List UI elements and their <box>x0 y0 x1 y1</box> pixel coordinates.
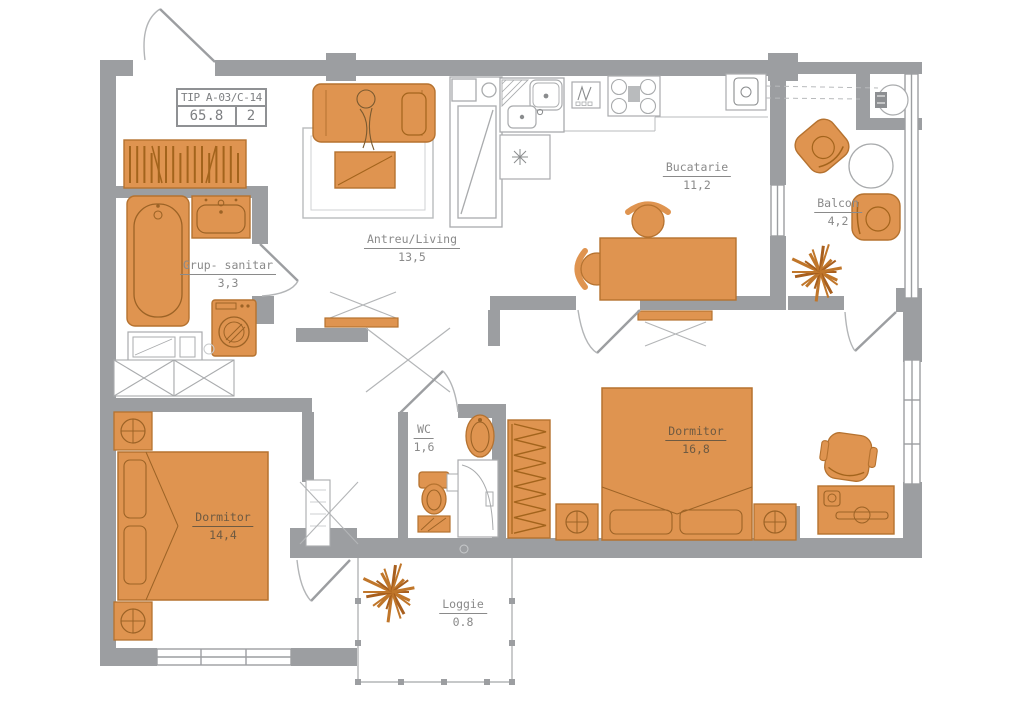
round-table-icon <box>849 144 893 188</box>
tv-stand-icon <box>325 292 398 327</box>
nightstand-lamp-icon <box>556 504 598 540</box>
nightstand-lamp-icon <box>114 412 152 450</box>
wardrobe-icon <box>508 420 550 538</box>
washbasin-icon <box>466 415 494 457</box>
nightstand-lamp-icon <box>754 504 796 540</box>
room-label-dormitor-mic: Dormitor 14,4 <box>192 510 253 543</box>
total-area-value: 65.8 <box>178 107 237 125</box>
floor-plan-drawing <box>0 0 1025 720</box>
nightstand-lamp-icon <box>114 602 152 640</box>
room-count-value: 2 <box>237 107 265 125</box>
boiler-icon <box>726 74 878 110</box>
vanity-icon <box>128 332 214 362</box>
plant-icon <box>792 244 842 301</box>
chair-icon <box>632 205 664 237</box>
toilet-icon <box>418 472 450 532</box>
washing-machine-icon <box>212 300 256 356</box>
loggia-boundary <box>355 558 515 685</box>
towel-radiator-icon <box>124 140 246 188</box>
dishwasher-icon <box>572 82 600 108</box>
floor-plan: TIP A-03/C-14 65.8 2 Antreu/Living 13,5 … <box>0 0 1025 720</box>
bedroom-large-door <box>578 310 640 353</box>
balcony-door <box>845 312 896 351</box>
bedroom-bottom-window <box>157 649 291 665</box>
double-bed-icon <box>602 388 752 540</box>
hall-double-door <box>366 328 450 392</box>
armchair-icon <box>790 114 854 177</box>
apartment-type-code: TIP A-03/C-14 <box>178 90 265 107</box>
coffee-table-icon <box>335 152 395 188</box>
room-label-balcon: Balcon 4,2 <box>814 196 862 229</box>
room-label-wc: WC 1,6 <box>414 422 435 455</box>
title-block: TIP A-03/C-14 65.8 2 <box>176 88 267 127</box>
tall-cabinet-icon <box>450 77 502 227</box>
washbasin-icon <box>192 196 250 238</box>
utility-fixture-icon <box>875 85 908 115</box>
kitchen-balcony-window <box>771 185 784 236</box>
room-label-antreu-living: Antreu/Living 13,5 <box>364 232 460 265</box>
office-chair-icon <box>817 430 879 483</box>
kitchen-sink-icon <box>500 78 564 132</box>
entrance-door <box>144 9 215 62</box>
room-label-dormitor-mare: Dormitor 16,8 <box>665 424 726 457</box>
dining-table-icon <box>578 205 737 301</box>
bedroom-right-window <box>904 360 920 484</box>
room-label-loggie: Loggie 0.8 <box>439 597 487 630</box>
extractor-cabinet-icon <box>500 135 550 179</box>
room-label-bucatarie: Bucatarie 11,2 <box>663 160 731 193</box>
sofa-icon <box>313 84 435 150</box>
room-label-grup-sanitar: Grup- sanitar 3,3 <box>180 258 276 291</box>
loggia-door <box>297 560 350 601</box>
balcony-glazing-window <box>905 74 918 298</box>
stove-icon <box>608 76 660 116</box>
plant-icon <box>363 564 414 623</box>
desk-icon <box>818 486 894 534</box>
wardrobe-icon <box>114 360 234 396</box>
tv-stand-icon <box>638 311 712 346</box>
